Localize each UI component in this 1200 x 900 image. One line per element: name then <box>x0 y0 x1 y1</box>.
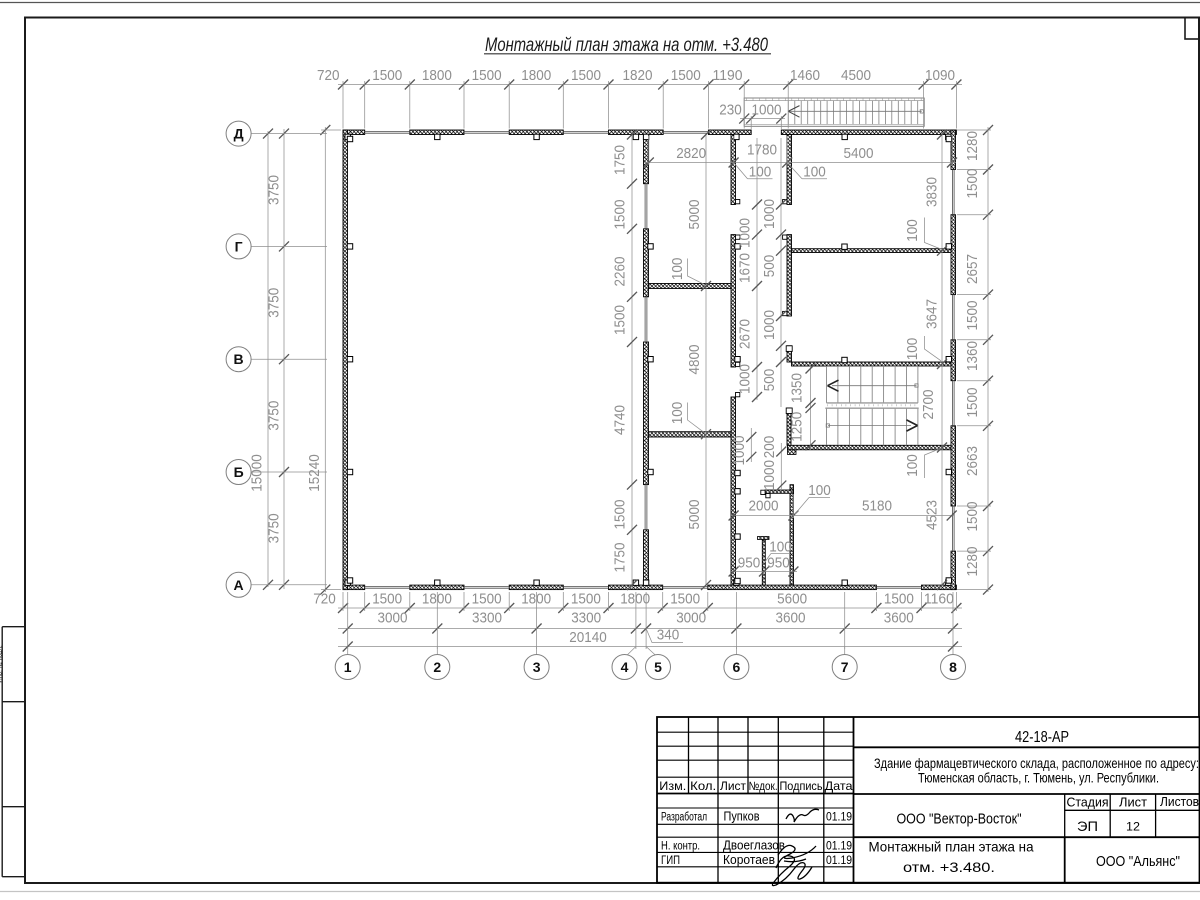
svg-text:720: 720 <box>317 67 340 84</box>
svg-text:№док.: №док. <box>749 779 778 793</box>
svg-text:1000: 1000 <box>731 436 748 466</box>
svg-text:1350: 1350 <box>789 373 806 403</box>
svg-text:01.19: 01.19 <box>826 810 852 824</box>
svg-text:100: 100 <box>904 338 921 361</box>
svg-text:1750: 1750 <box>612 145 629 175</box>
svg-text:1500: 1500 <box>571 591 601 608</box>
svg-text:2820: 2820 <box>676 145 706 162</box>
svg-text:1800: 1800 <box>521 591 551 608</box>
svg-text:1460: 1460 <box>790 67 820 84</box>
svg-text:4: 4 <box>621 659 629 675</box>
svg-text:3600: 3600 <box>776 610 806 627</box>
svg-text:Кол.: Кол. <box>690 779 716 793</box>
svg-text:3300: 3300 <box>571 610 601 627</box>
svg-text:12: 12 <box>1126 820 1140 834</box>
svg-text:Листов: Листов <box>1160 795 1199 809</box>
svg-text:Инв. № подл.: Инв. № подл. <box>0 645 4 683</box>
svg-text:Н. контр.: Н. контр. <box>661 841 700 853</box>
svg-text:1500: 1500 <box>671 67 701 84</box>
svg-text:2670: 2670 <box>737 319 754 349</box>
svg-text:5180: 5180 <box>862 498 892 515</box>
svg-text:5600: 5600 <box>777 591 807 608</box>
svg-text:100: 100 <box>749 164 772 181</box>
svg-text:1280: 1280 <box>964 547 981 577</box>
svg-text:3600: 3600 <box>884 610 914 627</box>
svg-text:100: 100 <box>904 219 921 242</box>
svg-text:Изм.: Изм. <box>659 779 686 793</box>
svg-text:1280: 1280 <box>964 131 981 161</box>
svg-text:1500: 1500 <box>612 305 629 335</box>
svg-text:1800: 1800 <box>422 67 452 84</box>
svg-text:1: 1 <box>344 659 352 675</box>
svg-text:01.19: 01.19 <box>826 853 852 867</box>
svg-text:3000: 3000 <box>378 610 408 627</box>
svg-text:4740: 4740 <box>612 405 629 435</box>
svg-text:1500: 1500 <box>372 591 402 608</box>
svg-text:Монтажный план этажа на отм. +: Монтажный план этажа на отм. +3.480 <box>485 35 768 56</box>
svg-text:Лист: Лист <box>720 779 746 793</box>
svg-text:42-18-АР: 42-18-АР <box>1015 729 1069 746</box>
svg-text:В: В <box>234 351 244 367</box>
svg-text:ГИП: ГИП <box>661 855 680 867</box>
svg-text:2657: 2657 <box>964 254 981 284</box>
svg-text:4800: 4800 <box>686 345 703 375</box>
svg-text:5000: 5000 <box>686 500 703 530</box>
svg-text:Подпись: Подпись <box>780 779 823 793</box>
svg-text:3: 3 <box>533 659 541 675</box>
svg-text:отм. +3.480.: отм. +3.480. <box>903 859 995 875</box>
svg-text:100: 100 <box>904 454 921 477</box>
svg-text:ЭП: ЭП <box>1077 819 1098 834</box>
svg-text:3647: 3647 <box>924 299 941 329</box>
svg-text:Лист: Лист <box>1119 796 1147 810</box>
svg-text:5400: 5400 <box>844 145 874 162</box>
svg-text:500: 500 <box>761 255 778 278</box>
svg-text:950: 950 <box>767 555 790 572</box>
svg-text:3000: 3000 <box>676 610 706 627</box>
svg-text:1500: 1500 <box>670 591 700 608</box>
svg-text:1500: 1500 <box>964 301 981 331</box>
svg-text:1500: 1500 <box>964 169 981 199</box>
svg-text:2260: 2260 <box>612 257 629 287</box>
svg-text:1750: 1750 <box>612 543 629 573</box>
svg-text:1500: 1500 <box>472 591 502 608</box>
svg-text:Г: Г <box>235 238 243 254</box>
svg-text:1000: 1000 <box>737 364 754 394</box>
svg-text:Коротаев: Коротаев <box>723 853 775 867</box>
svg-text:Д: Д <box>234 126 244 142</box>
svg-text:8: 8 <box>949 659 957 675</box>
svg-text:950: 950 <box>738 555 761 572</box>
svg-text:1800: 1800 <box>620 591 650 608</box>
svg-text:100: 100 <box>669 258 686 281</box>
svg-text:1800: 1800 <box>521 67 551 84</box>
svg-text:100: 100 <box>808 482 831 499</box>
svg-text:1000: 1000 <box>761 199 778 229</box>
svg-text:230: 230 <box>719 102 742 119</box>
svg-text:340: 340 <box>657 627 680 644</box>
svg-text:2700: 2700 <box>920 390 937 420</box>
svg-text:200: 200 <box>761 436 778 459</box>
svg-text:1500: 1500 <box>472 67 502 84</box>
svg-text:720: 720 <box>313 591 336 608</box>
svg-text:6: 6 <box>733 659 741 675</box>
svg-text:1820: 1820 <box>623 67 653 84</box>
svg-text:1250: 1250 <box>789 412 806 442</box>
svg-text:1000: 1000 <box>752 102 782 119</box>
svg-text:ООО "Вектор-Восток": ООО "Вектор-Восток" <box>897 811 1022 828</box>
svg-text:500: 500 <box>761 369 778 392</box>
svg-text:2663: 2663 <box>964 446 981 476</box>
svg-text:1000: 1000 <box>737 218 754 248</box>
svg-text:Дата: Дата <box>825 779 853 793</box>
svg-text:Монтажный план этажа на: Монтажный план этажа на <box>869 839 1034 855</box>
svg-text:ООО "Альянс": ООО "Альянс" <box>1096 854 1180 870</box>
svg-text:7: 7 <box>841 659 849 675</box>
svg-text:1800: 1800 <box>422 591 452 608</box>
svg-text:100: 100 <box>669 402 686 425</box>
svg-text:1090: 1090 <box>925 67 955 84</box>
svg-text:1670: 1670 <box>737 253 754 283</box>
svg-text:Б: Б <box>234 464 244 480</box>
svg-text:Разработал: Разработал <box>661 812 707 824</box>
svg-text:Стадия: Стадия <box>1067 796 1109 810</box>
svg-text:5000: 5000 <box>686 200 703 230</box>
svg-text:15240: 15240 <box>306 454 323 492</box>
svg-text:2: 2 <box>433 659 441 675</box>
svg-text:2000: 2000 <box>749 498 779 515</box>
svg-text:1500: 1500 <box>571 67 601 84</box>
svg-text:4523: 4523 <box>924 500 941 530</box>
svg-text:3830: 3830 <box>924 177 941 207</box>
svg-text:1780: 1780 <box>747 142 777 159</box>
svg-text:01.19: 01.19 <box>826 839 852 853</box>
svg-text:100: 100 <box>769 539 792 556</box>
svg-text:1160: 1160 <box>924 591 954 608</box>
svg-text:20140: 20140 <box>569 629 607 646</box>
svg-text:1500: 1500 <box>884 591 914 608</box>
svg-text:А: А <box>234 577 244 593</box>
svg-text:4500: 4500 <box>841 67 871 84</box>
svg-text:3300: 3300 <box>472 610 502 627</box>
svg-text:1360: 1360 <box>964 341 981 371</box>
svg-text:Тюменская область, г. Тюмень,: Тюменская область, г. Тюмень, ул. Респуб… <box>918 770 1159 786</box>
svg-text:1190: 1190 <box>713 67 743 84</box>
svg-text:1500: 1500 <box>964 388 981 418</box>
svg-text:1500: 1500 <box>372 67 402 84</box>
svg-text:100: 100 <box>803 164 826 181</box>
svg-text:Двоеглазов: Двоеглазов <box>723 839 785 853</box>
svg-text:1000: 1000 <box>761 310 778 340</box>
svg-text:1500: 1500 <box>612 200 629 230</box>
svg-text:1500: 1500 <box>964 502 981 532</box>
svg-text:5: 5 <box>654 659 662 675</box>
svg-text:1000: 1000 <box>761 460 778 490</box>
svg-text:1500: 1500 <box>612 500 629 530</box>
svg-text:Пупков: Пупков <box>724 810 760 824</box>
